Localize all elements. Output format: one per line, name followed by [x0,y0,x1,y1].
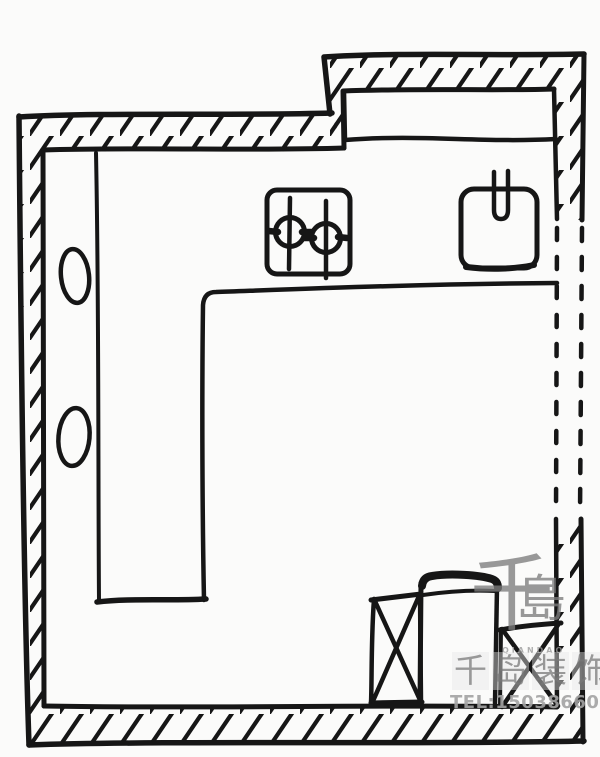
company-name: 千 岛 装 饰 [452,652,600,690]
company-name-char: 装 [532,652,569,690]
company-logo: 千 島 QIANDAO [470,552,580,662]
burner-right-icon [305,201,347,278]
faucet-icon [494,171,508,219]
logo-secondary-char: 島 [516,574,566,624]
burner-left-icon [269,198,311,269]
stove [267,190,350,278]
company-name-char: 饰 [572,652,600,690]
top-window-band [344,91,556,140]
company-name-char: 千 [452,652,489,690]
floorplan-canvas: 千 島 QIANDAO 千 岛 装 饰 TEL:15038660207 [0,0,600,757]
left-counter-ovals [56,248,92,468]
crossbox-left [371,594,422,703]
company-name-char: 岛 [492,652,529,690]
sink [461,171,537,269]
phone-number: TEL:15038660207 [450,692,600,713]
